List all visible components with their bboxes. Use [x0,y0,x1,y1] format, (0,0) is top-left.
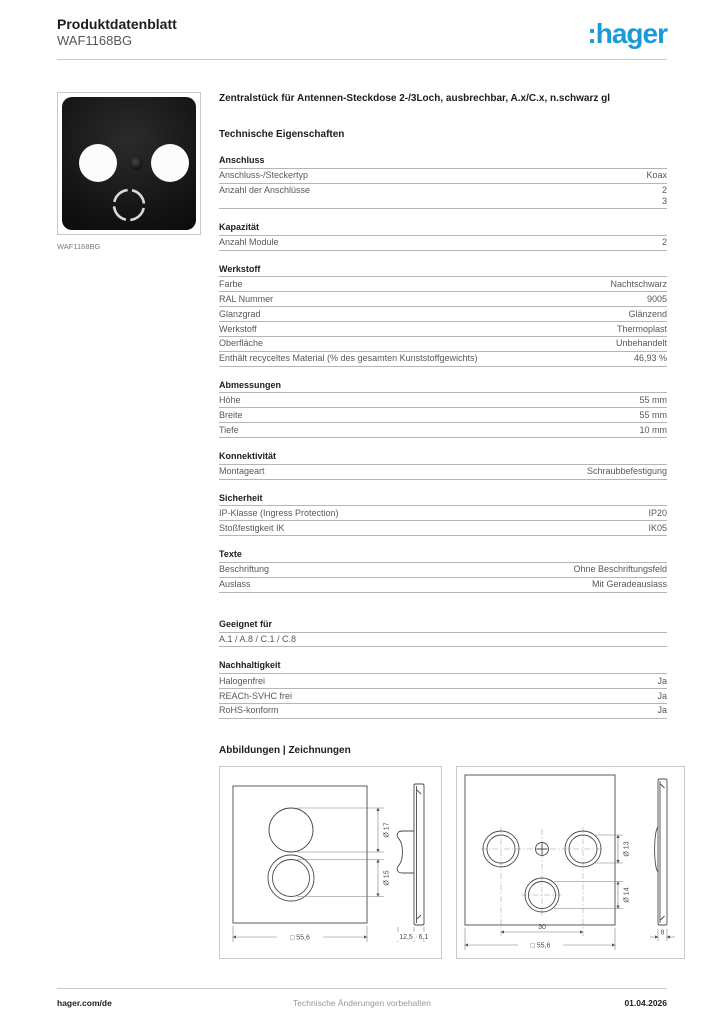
spec-row: RoHS-konformJa [219,704,667,719]
spec-row: Tiefe10 mm [219,423,667,438]
spec-label: A.1 / A.8 / C.1 / C.8 [219,634,308,644]
spec-row: Breite55 mm [219,408,667,423]
cover-plate-photo [62,97,196,230]
tech-properties-heading: Technische Eigenschaften [219,129,667,140]
spec-values: 2 [662,237,667,247]
spec-value: Glänzend [628,309,667,319]
spec-value: Ja [657,691,667,701]
spec-values: 55 mm [639,410,667,420]
spec-value: Ja [657,676,667,686]
spec-label: Anschluss-/Steckertyp [219,170,320,180]
spec-value: 3 [662,196,667,206]
spec-row: RAL Nummer9005 [219,292,667,307]
spec-label: Glanzgrad [219,309,273,319]
coax-hole-left [79,144,117,182]
spec-value: 2 [662,185,667,195]
spec-value: Schraubbefestigung [587,466,667,476]
spec-label: Stoßfestigkeit IK [219,523,297,533]
section-title: Werkstoff [219,264,667,278]
spec-sections: AnschlussAnschluss-/SteckertypKoaxAnzahl… [219,155,667,719]
spec-section: KonnektivitätMontageartSchraubbefestigun… [219,451,667,480]
spec-label: Höhe [219,395,253,405]
spec-label: RAL Nummer [219,294,285,304]
spec-row: GlanzgradGlänzend [219,307,667,322]
spec-row: Anzahl Module2 [219,236,667,251]
spec-label: Halogenfrei [219,676,277,686]
spec-row: Höhe55 mm [219,393,667,408]
spec-row: WerkstoffThermoplast [219,322,667,337]
drawings-row: Ø 17 Ø 15 □ 55,6 12,5 6,1 [219,766,687,959]
section-title: Kapazität [219,222,667,236]
spec-values: Nachtschwarz [610,279,667,289]
section-title: Geeignet für [219,619,667,633]
dim-label-dia13: Ø 13 [624,841,631,856]
footer-date: 01.04.2026 [624,998,667,1008]
spec-label: Montageart [219,466,277,476]
spec-values: Unbehandelt [616,338,667,348]
spec-row: OberflächeUnbehandelt [219,337,667,352]
website-link[interactable]: hager.com/de [57,998,112,1008]
spec-section: AbmessungenHöhe55 mmBreite55 mmTiefe10 m… [219,380,667,438]
spec-values: Ja [657,705,667,715]
spec-row: Anschluss-/SteckertypKoax [219,169,667,184]
spec-label: Beschriftung [219,564,281,574]
spec-row: MontageartSchraubbefestigung [219,465,667,480]
screw-hole [129,156,143,170]
spec-section: AnschlussAnschluss-/SteckertypKoaxAnzahl… [219,155,667,209]
dim-label-width2: □ 55,6 [531,942,551,949]
spec-section: SicherheitIP-Klasse (Ingress Protection)… [219,493,667,537]
product-description: Zentralstück für Antennen-Steckdose 2-/3… [219,92,667,105]
spec-label: RoHS-konform [219,705,291,715]
spec-label: Tiefe [219,425,251,435]
spec-value: 46,93 % [634,353,667,363]
dim-label-depth-plate1: 6,1 [419,934,429,941]
dim-label-dia15: Ø 15 [384,870,391,885]
dim-label-dia17: Ø 17 [384,822,391,837]
spec-value: 55 mm [639,410,667,420]
spec-values: 23 [662,185,667,206]
section-title: Texte [219,549,667,563]
side-profile-3hole [655,779,667,925]
dim-label-spacing30: 30 [538,924,546,931]
spec-values: IK05 [648,523,667,533]
spec-value: Koax [646,170,667,180]
section-title: Sicherheit [219,493,667,507]
spec-values: Ja [657,691,667,701]
section-title: Anschluss [219,155,667,169]
side-profile-2hole [397,784,424,925]
spec-value: Nachtschwarz [610,279,667,289]
spec-values: Schraubbefestigung [587,466,667,476]
breakout-ring-icon [111,187,147,223]
spec-value: Ohne Beschriftungsfeld [573,564,667,574]
spec-row: HalogenfreiJa [219,674,667,689]
section-title: Nachhaltigkeit [219,660,667,674]
spec-values: Ja [657,676,667,686]
spec-row: AuslassMit Geradeauslass [219,578,667,593]
left-column: WAF1168BG [57,92,202,959]
drawings-heading: Abbildungen | Zeichnungen [219,745,667,756]
spec-label: IP-Klasse (Ingress Protection) [219,508,351,518]
product-reference: WAF1168BG [57,33,177,50]
right-column: Zentralstück für Antennen-Steckdose 2-/3… [219,92,667,959]
spec-row: IP-Klasse (Ingress Protection)IP20 [219,506,667,521]
spec-label: Breite [219,410,255,420]
spec-label: Farbe [219,279,255,289]
front-view-3hole [465,775,615,925]
spec-value: IK05 [648,523,667,533]
header-title-block: Produktdatenblatt WAF1168BG [57,15,177,50]
spec-value: IP20 [648,508,667,518]
spec-row: Anzahl der Anschlüsse23 [219,184,667,209]
spec-row: Enthält recyceltes Material (% des gesam… [219,352,667,367]
dim-label-width1: □ 55,6 [290,934,310,941]
section-title: Konnektivität [219,451,667,465]
spec-values: IP20 [648,508,667,518]
spec-row: A.1 / A.8 / C.1 / C.8 [219,633,667,648]
spec-section: TexteBeschriftungOhne BeschriftungsfeldA… [219,549,667,593]
spec-values: Mit Geradeauslass [592,579,667,589]
spec-value: Thermoplast [617,324,667,334]
spec-values: Thermoplast [617,324,667,334]
spec-value: 2 [662,237,667,247]
spec-label: Anzahl der Anschlüsse [219,185,322,195]
drawing-2hole-figure: Ø 17 Ø 15 □ 55,6 12,5 6,1 [219,766,442,959]
spec-values: Koax [646,170,667,180]
spec-values: 46,93 % [634,353,667,363]
spec-label: Anzahl Module [219,237,291,247]
spec-section: Geeignet fürA.1 / A.8 / C.1 / C.8 [219,619,667,648]
breakout-ring [111,187,147,223]
spec-value: Ja [657,705,667,715]
spec-section: WerkstoffFarbeNachtschwarzRAL Nummer9005… [219,264,667,367]
dim-label-depth-clip: 12,5 [399,934,413,941]
spec-values: 10 mm [639,425,667,435]
page-footer: hager.com/de Technische Änderungen vorbe… [57,988,667,1008]
spec-value: 55 mm [639,395,667,405]
spec-value: 10 mm [639,425,667,435]
front-view-2hole [233,786,367,923]
dimension-lines [465,835,675,950]
dim-label-depth-plate2: 8 [661,929,665,936]
page-header: Produktdatenblatt WAF1168BG :hager [57,0,667,60]
section-title: Abmessungen [219,380,667,394]
spec-row: REACh-SVHC freiJa [219,689,667,704]
spec-row: BeschriftungOhne Beschriftungsfeld [219,563,667,578]
drawing-3hole-figure: Ø 13 Ø 14 30 □ 55,6 8 [456,766,685,959]
dimension-lines [233,808,424,942]
hager-logo: :hager [587,20,667,48]
spec-label: Enthält recyceltes Material (% des gesam… [219,353,489,363]
spec-values: 55 mm [639,395,667,405]
product-photo [57,92,201,235]
spec-label: REACh-SVHC frei [219,691,304,701]
spec-row: FarbeNachtschwarz [219,277,667,292]
spec-section: KapazitätAnzahl Module2 [219,222,667,251]
spec-row: Stoßfestigkeit IKIK05 [219,521,667,536]
spec-label: Oberfläche [219,338,275,348]
spec-values: Ohne Beschriftungsfeld [573,564,667,574]
spec-values: Glänzend [628,309,667,319]
spec-section: NachhaltigkeitHalogenfreiJaREACh-SVHC fr… [219,660,667,718]
dim-label-dia14: Ø 14 [624,887,631,902]
photo-caption: WAF1168BG [57,242,202,251]
coax-hole-right [151,144,189,182]
doc-title: Produktdatenblatt [57,15,177,33]
spec-value: Unbehandelt [616,338,667,348]
spec-label: Auslass [219,579,263,589]
footer-notice: Technische Änderungen vorbehalten [293,998,431,1008]
spec-label: Werkstoff [219,324,269,334]
datasheet-page: Produktdatenblatt WAF1168BG :hager WAF1 [0,0,724,1024]
content: WAF1168BG Zentralstück für Antennen-Stec… [57,92,667,959]
spec-value: Mit Geradeauslass [592,579,667,589]
spec-values: 9005 [647,294,667,304]
spec-value: 9005 [647,294,667,304]
